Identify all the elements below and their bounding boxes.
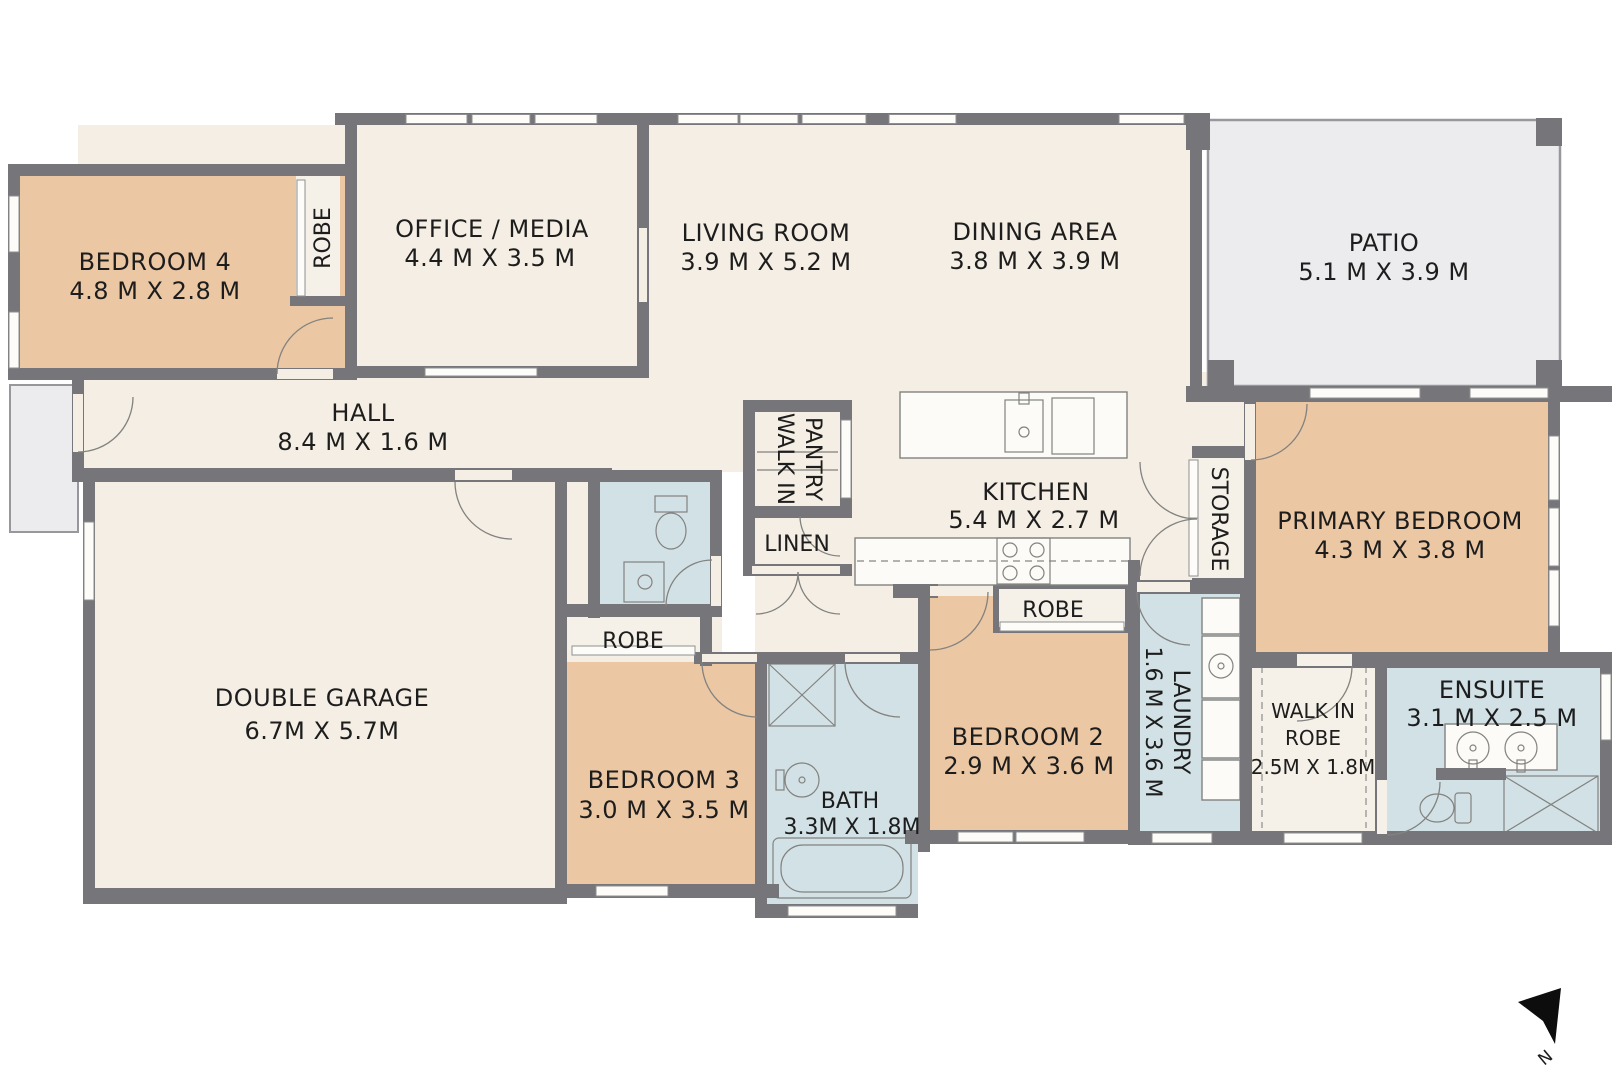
bedroom3-label: BEDROOM 3 bbox=[588, 766, 741, 794]
office-dims: 4.4 M X 3.5 M bbox=[404, 244, 575, 272]
primary-label: PRIMARY BEDROOM bbox=[1277, 507, 1523, 535]
robe2-label: ROBE bbox=[1022, 598, 1084, 623]
patio-post bbox=[1208, 360, 1234, 386]
island-bench bbox=[900, 392, 1127, 458]
door-gap bbox=[752, 566, 840, 574]
ensuite-dims: 3.1 M X 2.5 M bbox=[1406, 704, 1577, 732]
bath-label: BATH bbox=[821, 789, 879, 814]
living-label: LIVING ROOM bbox=[682, 219, 851, 247]
pantry-slider bbox=[841, 420, 851, 498]
window bbox=[802, 115, 866, 124]
washer bbox=[1202, 636, 1240, 698]
wall bbox=[1192, 446, 1248, 458]
door-gap bbox=[845, 654, 900, 662]
garage-label: DOUBLE GARAGE bbox=[215, 684, 430, 712]
window bbox=[678, 115, 738, 124]
wall bbox=[8, 164, 345, 176]
primary-dims: 4.3 M X 3.8 M bbox=[1314, 536, 1485, 564]
storage-label: STORAGE bbox=[1206, 467, 1231, 572]
door-gap bbox=[639, 228, 647, 302]
linen-label: LINEN bbox=[764, 532, 830, 557]
wall bbox=[1436, 768, 1506, 780]
window bbox=[84, 522, 94, 600]
wall bbox=[743, 400, 852, 412]
sliding-robe-door bbox=[1000, 622, 1124, 631]
patio-post bbox=[1536, 118, 1562, 146]
door-gap bbox=[1245, 404, 1255, 460]
porch-floor bbox=[10, 385, 78, 532]
wall bbox=[555, 468, 567, 902]
dining-dims: 3.8 M X 3.9 M bbox=[949, 247, 1120, 275]
window bbox=[9, 312, 19, 368]
wall bbox=[588, 470, 600, 618]
garage-dims: 6.7M X 5.7M bbox=[245, 717, 400, 745]
bedroom2-dims: 2.9 M X 3.6 M bbox=[943, 752, 1114, 780]
window bbox=[1549, 508, 1559, 566]
door-gap bbox=[930, 586, 988, 596]
wall bbox=[72, 468, 612, 482]
door-gap bbox=[73, 394, 83, 452]
door-leaf bbox=[1189, 518, 1198, 576]
hall-label: HALL bbox=[331, 399, 394, 427]
patio-label: PATIO bbox=[1349, 229, 1420, 257]
wir-dims: 2.5M X 1.8M bbox=[1251, 755, 1376, 779]
wall bbox=[588, 470, 722, 482]
wall bbox=[83, 888, 567, 904]
north-arrow-icon bbox=[1518, 988, 1561, 1044]
sliding-door bbox=[1470, 388, 1548, 398]
wall-pier bbox=[866, 113, 889, 125]
door-gap bbox=[1137, 582, 1190, 592]
wall bbox=[560, 604, 722, 617]
window bbox=[1549, 436, 1559, 500]
wall bbox=[918, 584, 930, 852]
kitchen-dims: 5.4 M X 2.7 M bbox=[948, 506, 1119, 534]
wall bbox=[743, 400, 755, 576]
wall bbox=[1192, 578, 1248, 590]
window bbox=[472, 115, 530, 124]
door-gap bbox=[711, 556, 721, 606]
bath-floor bbox=[767, 662, 918, 904]
wall bbox=[1240, 652, 1612, 668]
robe3-label: ROBE bbox=[602, 629, 664, 654]
laundry-bench bbox=[1202, 598, 1240, 634]
wall bbox=[743, 506, 852, 518]
pantry-label-2: PANTRY bbox=[800, 417, 825, 502]
wall bbox=[755, 652, 767, 918]
window bbox=[535, 115, 597, 124]
floor-plan-page: BEDROOM 4 4.8 M X 2.8 M ROBE OFFICE / ME… bbox=[0, 0, 1620, 1080]
laundry-label: LAUNDRY bbox=[1168, 670, 1193, 775]
bedroom4-dims: 4.8 M X 2.8 M bbox=[69, 277, 240, 305]
kitchen-counter bbox=[855, 538, 1130, 585]
door-gap bbox=[455, 470, 512, 480]
laundry-bench bbox=[1202, 700, 1240, 758]
window bbox=[596, 886, 668, 896]
kitchen-label: KITCHEN bbox=[982, 478, 1090, 506]
window bbox=[958, 832, 1013, 842]
sliding-robe-door bbox=[297, 180, 305, 296]
bedroom4-label: BEDROOM 4 bbox=[79, 248, 232, 276]
bedroom2-label: BEDROOM 2 bbox=[952, 723, 1105, 751]
window bbox=[1016, 832, 1084, 842]
laundry-dims: 1.6 M X 3.6 M bbox=[1140, 647, 1165, 798]
wall bbox=[1240, 592, 1252, 845]
bath-dims: 3.3M X 1.8M bbox=[784, 815, 921, 840]
wir-label-2: ROBE bbox=[1285, 726, 1341, 750]
north-label: N bbox=[1534, 1046, 1557, 1069]
robe4-label: ROBE bbox=[311, 207, 336, 269]
laundry-bench bbox=[1202, 760, 1240, 800]
door-gap bbox=[1377, 780, 1387, 834]
floor-plan-drawing: BEDROOM 4 4.8 M X 2.8 M ROBE OFFICE / ME… bbox=[0, 0, 1620, 1080]
kitchen-island bbox=[900, 392, 1127, 458]
window bbox=[9, 196, 19, 252]
window bbox=[1152, 833, 1212, 843]
door-gap bbox=[702, 654, 757, 662]
patio-post bbox=[1536, 360, 1562, 386]
window bbox=[889, 115, 956, 124]
dining-label: DINING AREA bbox=[953, 218, 1118, 246]
wir-label-1: WALK IN bbox=[1271, 699, 1355, 723]
wall bbox=[1190, 125, 1202, 386]
bedroom3-dims: 3.0 M X 3.5 M bbox=[578, 796, 749, 824]
hall-dims: 8.4 M X 1.6 M bbox=[277, 428, 448, 456]
window bbox=[1284, 833, 1362, 843]
window bbox=[1310, 388, 1420, 398]
window bbox=[425, 368, 537, 376]
compass: N bbox=[1518, 988, 1561, 1070]
window bbox=[1549, 570, 1559, 626]
wall bbox=[345, 113, 357, 380]
door-gap bbox=[1297, 654, 1352, 666]
patio-dims: 5.1 M X 3.9 M bbox=[1298, 258, 1469, 286]
living-dims: 3.9 M X 5.2 M bbox=[680, 248, 851, 276]
ensuite-label: ENSUITE bbox=[1439, 676, 1545, 704]
window bbox=[406, 115, 467, 124]
window bbox=[740, 115, 798, 124]
door-gap bbox=[277, 369, 333, 379]
robe4-wall bbox=[290, 296, 345, 306]
pantry-label-1: WALK IN bbox=[772, 413, 797, 505]
window bbox=[1601, 674, 1611, 740]
window bbox=[788, 906, 896, 916]
door-leaf bbox=[1189, 460, 1198, 518]
window bbox=[1119, 115, 1184, 124]
office-label: OFFICE / MEDIA bbox=[395, 215, 589, 243]
